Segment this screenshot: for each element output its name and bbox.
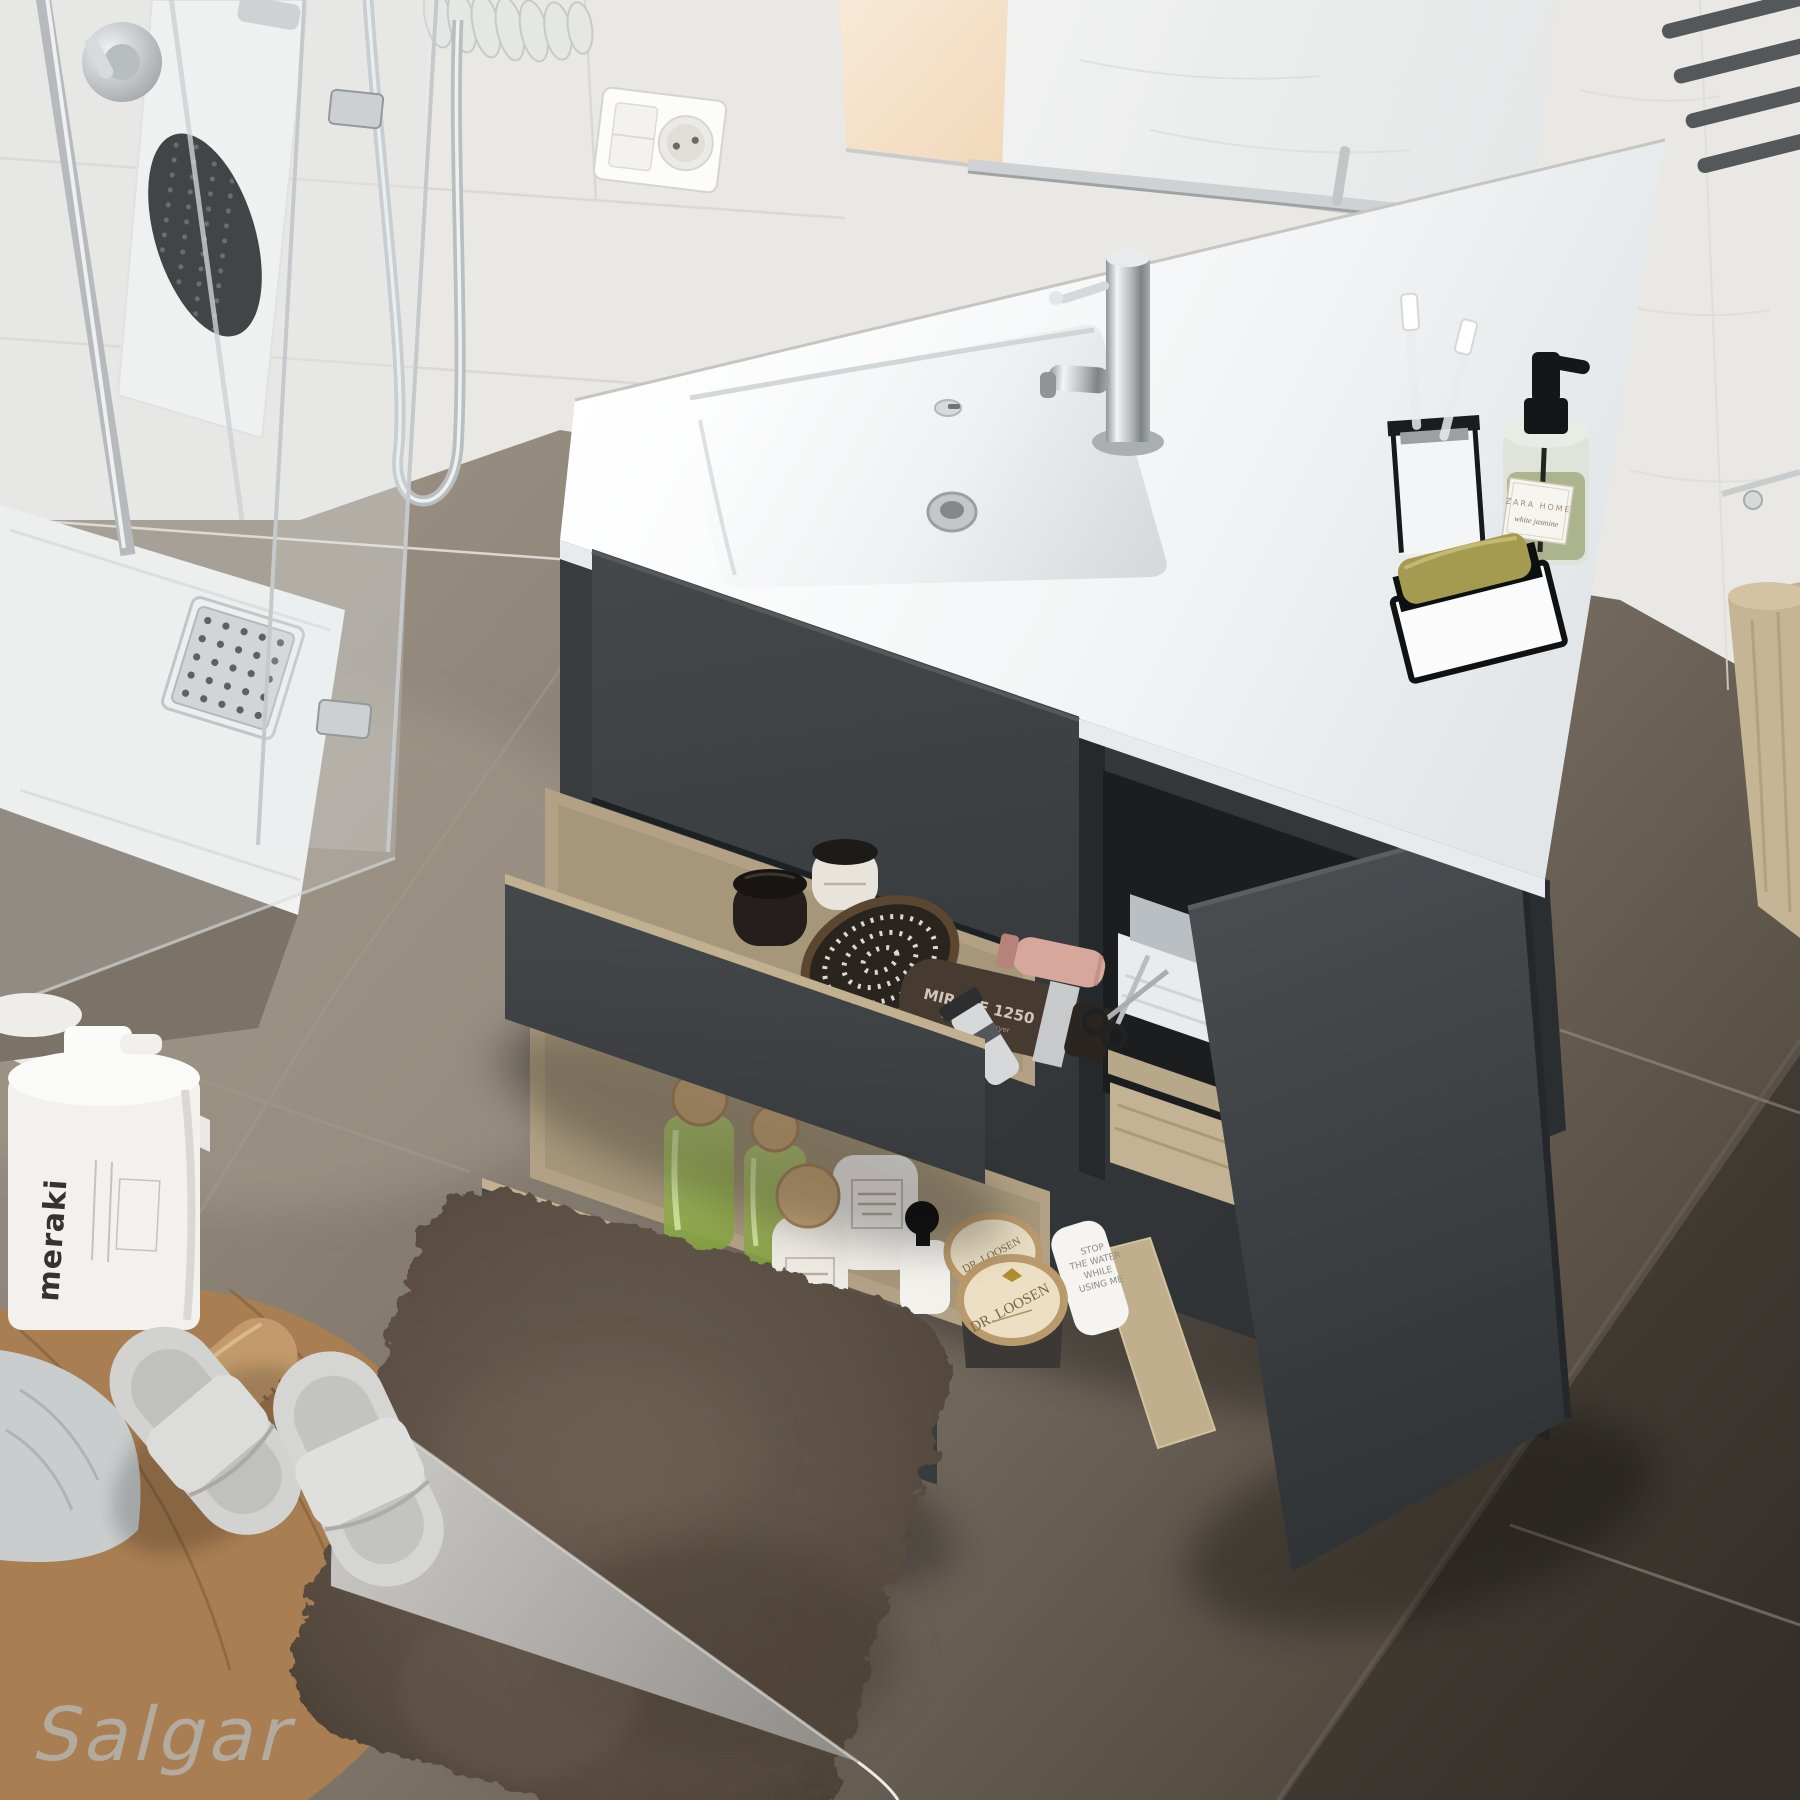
faucet-cap [1106,249,1150,267]
white-jar [812,839,878,910]
dark-jar [733,869,807,946]
lever-knob [1049,291,1063,305]
overflow-slot [948,404,960,409]
bottle-pump [64,1026,132,1082]
jar-lid [812,839,878,865]
spout-aerator [1040,372,1056,398]
door-hinge [316,699,371,738]
salgar-watermark: Salgar [26,1691,307,1778]
bottle-body [900,1240,950,1314]
pump-spout [120,1034,162,1054]
faucet-spout [1047,364,1111,394]
faucet-body [1106,258,1150,442]
bathroom-scene: ZARA HOME white jasmine [0,0,1800,1800]
pump-collar [1524,398,1568,434]
round-tin-large: DR. LOOSEN [960,1258,1064,1368]
drain-cap [940,501,964,519]
cabinet-divider [1079,702,1105,1181]
towel-hook [1744,491,1762,509]
wall-socket [593,87,727,193]
toothbrush-head [1401,293,1419,330]
mirror-warm-reflection [840,0,1008,168]
scene-render: ZARA HOME white jasmine [0,0,1800,1800]
door-hinge [328,89,383,128]
